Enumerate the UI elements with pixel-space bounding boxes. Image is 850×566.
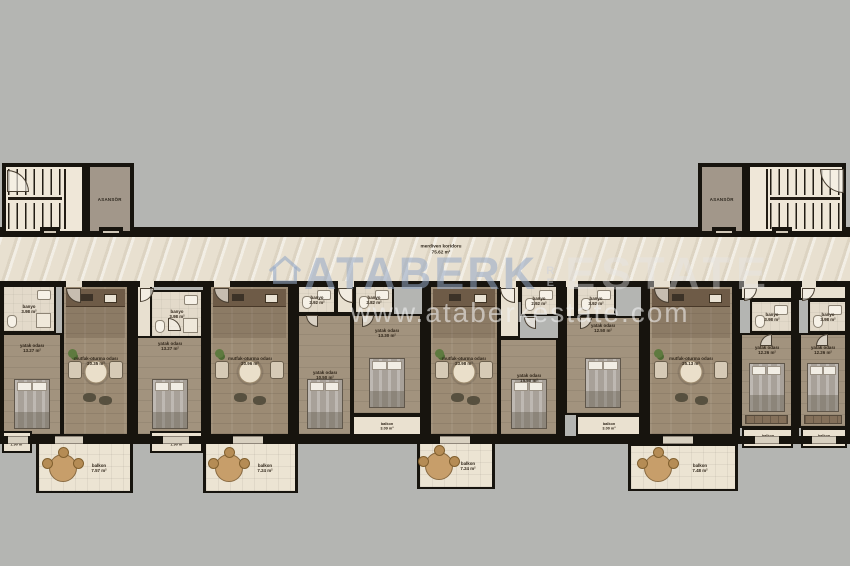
bed <box>749 363 785 412</box>
pillow <box>372 361 387 370</box>
room-yatak-odas: yatak odası13.30 m² <box>352 314 422 415</box>
armchair <box>215 361 229 379</box>
door-opening <box>140 281 154 287</box>
pillow <box>32 382 47 391</box>
room-mutfak-oturma-odas: mutfak-oturma odası23.98 m² <box>429 285 499 436</box>
room-label: balkon7.57 m² <box>91 462 106 473</box>
toilet <box>155 320 165 333</box>
room-yatak-odas: yatak odası12.26 m² <box>799 333 847 428</box>
room-label: banyo2.92 m² <box>309 294 324 305</box>
chair <box>83 393 96 402</box>
wall <box>0 281 3 444</box>
door-opening <box>55 436 83 444</box>
room-mutfak-oturma-odas: mutfak-oturma odası25.13 m² <box>648 285 734 436</box>
pillow <box>529 382 544 391</box>
pillow <box>155 382 170 391</box>
wardrobe <box>745 415 788 424</box>
pillow <box>17 382 32 391</box>
door-opening <box>214 281 230 287</box>
room-banyo: banyo2.82 m² <box>354 285 394 314</box>
stair-landing-divider <box>8 197 62 200</box>
blanket <box>512 412 546 428</box>
elevator-label: ASANSÖR <box>98 197 122 202</box>
blanket <box>308 412 342 428</box>
room-label: yatak odası12.50 m² <box>591 322 615 333</box>
stove <box>672 294 684 301</box>
door-opening <box>812 436 836 444</box>
elevator-label: ASANSÖR <box>710 197 734 202</box>
room-balkon: balkon3.00 m² <box>576 415 641 436</box>
room-balkon: balkon7.24 m² <box>203 441 298 493</box>
room-label: mutfak-oturma odası25.13 m² <box>669 355 713 366</box>
room-label: mutfak-oturma odası23.98 m² <box>442 355 486 366</box>
room-label: banyo3.98 m² <box>764 311 779 322</box>
room-label: banyo3.98 m² <box>820 311 835 322</box>
pillow <box>823 366 836 375</box>
balcony-chair <box>42 458 53 469</box>
door-opening <box>663 436 693 444</box>
pillow <box>588 361 603 370</box>
wall <box>558 281 565 444</box>
blanket <box>750 395 784 411</box>
room-balkon: balkon7.48 m² <box>628 443 738 491</box>
bed <box>14 379 50 429</box>
room-banyo: banyo2.92 m² <box>520 285 558 316</box>
balcony-chair <box>239 458 250 469</box>
balcony-chair <box>434 445 445 456</box>
armchair <box>270 361 284 379</box>
pillow <box>514 382 529 391</box>
pillow <box>387 361 402 370</box>
floor-plan: merdiven koridoru 75.62 m² ASANSÖR ASANS… <box>0 0 850 566</box>
sink <box>37 290 51 300</box>
corridor-area: 75.62 m² <box>408 249 474 255</box>
toilet <box>7 315 17 328</box>
pillow <box>603 361 618 370</box>
room-label: banyo2.92 m² <box>531 295 546 306</box>
door-opening <box>500 281 516 287</box>
wall <box>203 281 209 444</box>
armchair <box>654 361 668 379</box>
door-opening <box>755 436 779 444</box>
corridor-label: merdiven koridoru 75.62 m² <box>408 243 474 255</box>
room-label: yatak odası10.50 m² <box>312 370 336 381</box>
door-arc <box>524 317 536 329</box>
room-label: yatak odası13.27 m² <box>20 342 44 353</box>
door-opening <box>99 227 123 237</box>
balcony-chair <box>73 458 84 469</box>
shower <box>36 313 51 328</box>
stove <box>232 294 244 301</box>
room-banyo: banyo3.98 m² <box>808 300 847 333</box>
door-opening <box>772 227 792 237</box>
balcony-table <box>425 452 453 480</box>
bed <box>807 363 839 412</box>
wall <box>641 281 648 444</box>
elevator-left: ASANSÖR <box>86 163 134 235</box>
room-label: balkon3.09 m² <box>380 421 393 430</box>
room-banyo: banyo3.98 m² <box>750 300 793 333</box>
door-opening <box>566 281 578 287</box>
room-yatak-odas: yatak odası10.50 m² <box>297 314 352 436</box>
stove <box>81 294 93 301</box>
plant-icon <box>654 349 663 358</box>
kitchen-sink <box>265 294 278 303</box>
wall <box>845 281 850 444</box>
door-opening <box>233 436 263 444</box>
balcony-table <box>49 454 77 482</box>
stair-landing <box>750 169 768 229</box>
door-opening <box>712 227 736 237</box>
blanket <box>153 412 187 428</box>
plant-icon <box>215 349 224 358</box>
door-opening <box>8 436 28 444</box>
door-opening <box>66 281 82 287</box>
pillow <box>325 382 340 391</box>
kitchen-zone <box>66 306 125 338</box>
blanket <box>586 391 620 407</box>
wall <box>734 281 740 444</box>
room-balkon: balkon7.57 m² <box>36 441 133 493</box>
balcony-chair <box>668 458 679 469</box>
door-opening <box>744 281 758 287</box>
elevator-right: ASANSÖR <box>698 163 746 235</box>
door-opening <box>40 227 60 237</box>
wall <box>129 281 136 444</box>
balcony-chair <box>449 456 460 467</box>
bed <box>511 379 547 429</box>
room-mutfak-oturma-odas: mutfak-oturma odası20.96 m² <box>209 285 290 436</box>
room-banyo: banyo3.98 m² <box>2 285 56 333</box>
kitchen-zone <box>652 306 730 338</box>
room-label: mutfak-oturma odası20.35 m² <box>74 355 118 366</box>
stair-treads <box>8 203 62 229</box>
kitchen-sink <box>474 294 487 303</box>
bed <box>585 358 621 408</box>
pillow <box>810 366 823 375</box>
room-label: banyo2.82 m² <box>366 294 381 305</box>
kitchen-counter <box>433 289 495 307</box>
balcony-table <box>215 454 243 482</box>
sink <box>184 295 198 305</box>
pillow <box>310 382 325 391</box>
balcony-chair <box>208 458 219 469</box>
room-yatak-odas: yatak odası13.27 m² <box>136 336 203 436</box>
wall <box>793 281 799 444</box>
pillow <box>170 382 185 391</box>
room-label: banyo3.92 m² <box>588 295 603 306</box>
balcony-table <box>644 454 672 482</box>
pillow <box>767 366 782 375</box>
armchair <box>714 361 728 379</box>
room-mutfak-oturma-odas: mutfak-oturma odası20.35 m² <box>62 285 129 436</box>
blanket <box>15 412 49 428</box>
stair-treads <box>770 203 840 229</box>
blanket <box>370 391 404 407</box>
balcony-chair <box>637 458 648 469</box>
blanket <box>808 395 838 411</box>
room-balkon: balkon3.09 m² <box>352 415 422 436</box>
room-label: balkon3.00 m² <box>602 421 615 430</box>
stair-landing-divider <box>770 197 840 200</box>
room-yatak-odas: yatak odası15.50 m² <box>499 338 558 436</box>
door-opening <box>338 281 354 287</box>
stove <box>449 294 461 301</box>
room-balkon: balkon7.24 m² <box>417 441 495 489</box>
room-yatak-odas: yatak odası12.26 m² <box>740 333 793 428</box>
bed <box>369 358 405 408</box>
door-opening <box>440 436 470 444</box>
stair-landing <box>64 169 82 229</box>
kitchen-zone <box>213 306 286 338</box>
room-label: balkon7.24 m² <box>257 462 272 473</box>
kitchen-sink <box>104 294 117 303</box>
room-banyo: banyo3.92 m² <box>576 285 616 316</box>
room-yatak-odas: yatak odası13.27 m² <box>2 333 62 436</box>
room-label: yatak odası13.30 m² <box>375 327 399 338</box>
balcony-chair <box>224 447 235 458</box>
bed <box>307 379 343 429</box>
shower <box>183 318 198 333</box>
room-label: balkon7.48 m² <box>692 462 707 473</box>
room-label: banyo3.98 m² <box>21 304 36 315</box>
wall <box>290 281 297 444</box>
chair <box>675 393 688 402</box>
balcony-chair <box>58 447 69 458</box>
balcony-chair <box>418 456 429 467</box>
chair <box>99 396 112 405</box>
room-label: yatak odası15.50 m² <box>516 373 540 384</box>
chair <box>451 393 464 402</box>
chair <box>253 396 266 405</box>
room-yatak-odas: yatak odası12.50 m² <box>565 316 641 415</box>
room-label: balkon7.24 m² <box>460 460 475 471</box>
wall <box>422 281 429 444</box>
door-opening <box>654 281 670 287</box>
chair <box>467 396 480 405</box>
room-label: yatak odası13.27 m² <box>157 341 181 352</box>
chair <box>234 393 247 402</box>
door-opening <box>163 436 189 444</box>
bed <box>152 379 188 429</box>
kitchen-zone <box>433 306 495 338</box>
chair <box>695 396 708 405</box>
room-label: mutfak-oturma odası20.96 m² <box>228 355 272 366</box>
door-opening <box>802 281 816 287</box>
wardrobe <box>804 415 842 424</box>
pillow <box>752 366 767 375</box>
room-banyo: banyo2.92 m² <box>297 285 336 314</box>
kitchen-sink <box>709 294 722 303</box>
balcony-chair <box>653 447 664 458</box>
